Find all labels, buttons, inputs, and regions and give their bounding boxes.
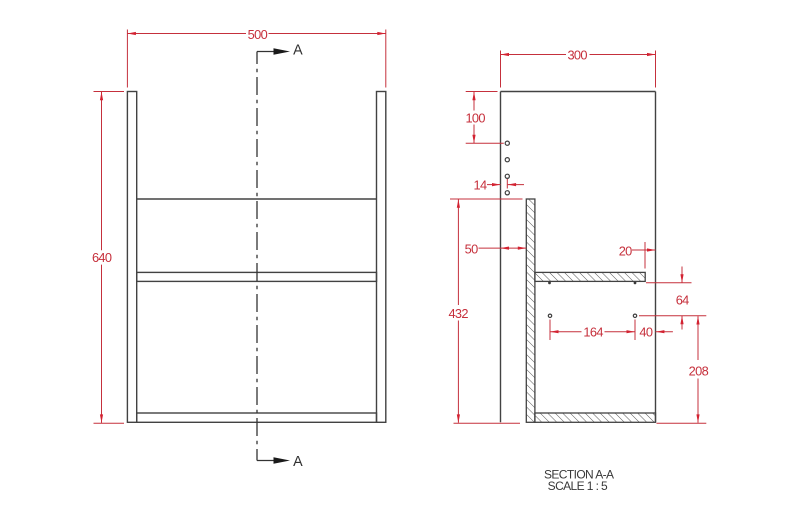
svg-text:100: 100 [465, 111, 485, 126]
svg-text:432: 432 [448, 306, 468, 321]
svg-text:14: 14 [474, 178, 487, 193]
svg-text:20: 20 [619, 244, 632, 259]
svg-text:500: 500 [248, 27, 268, 42]
svg-text:208: 208 [689, 364, 709, 379]
svg-text:A: A [293, 454, 303, 470]
svg-text:40: 40 [639, 325, 652, 340]
svg-text:64: 64 [676, 293, 689, 308]
svg-text:50: 50 [465, 242, 478, 257]
svg-text:164: 164 [583, 325, 603, 340]
svg-text:A: A [293, 43, 303, 59]
svg-text:SCALE 1 : 5: SCALE 1 : 5 [548, 479, 608, 493]
svg-text:300: 300 [567, 48, 587, 63]
svg-text:640: 640 [92, 250, 112, 265]
